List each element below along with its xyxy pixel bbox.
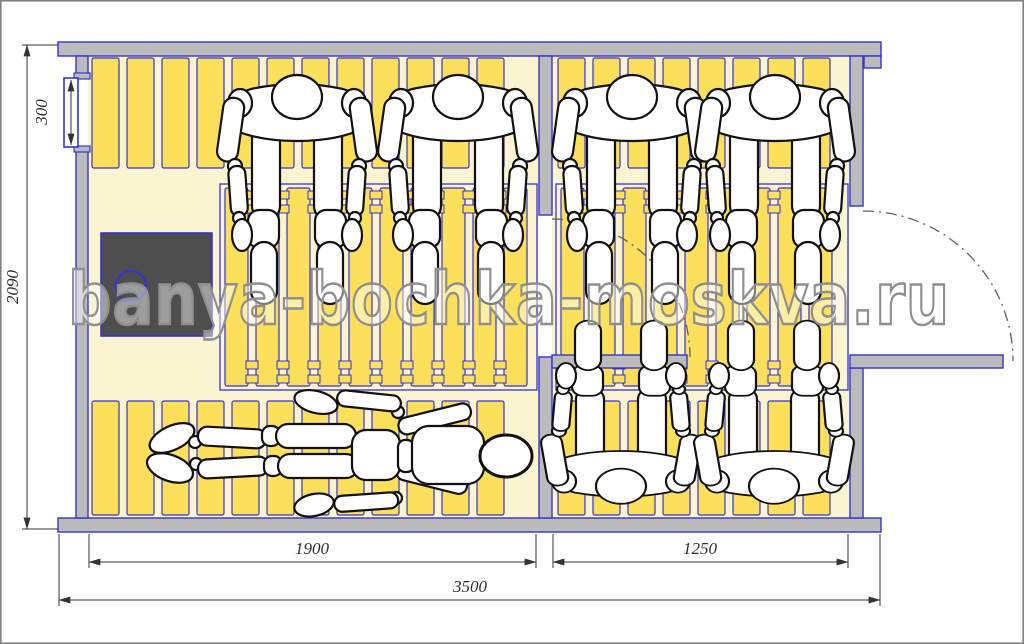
dimension-label: 300 xyxy=(32,99,51,126)
bench-rung xyxy=(432,375,444,383)
bench-rung xyxy=(768,375,780,383)
bench-rung xyxy=(246,375,258,383)
bench-slat xyxy=(92,401,119,515)
bench-slat xyxy=(162,58,189,168)
bench-rung xyxy=(370,191,382,199)
wall-top xyxy=(58,42,881,56)
dimension-label: 1900 xyxy=(295,539,330,558)
dimension-label: 2090 xyxy=(3,270,22,305)
dimension-overall-3500: 3500 xyxy=(59,534,880,606)
bench-rung xyxy=(246,361,258,369)
dimension-steam-room-1900: 1900 xyxy=(89,534,536,568)
bench-rung xyxy=(277,375,289,383)
sauna-floor-plan: banya-bochka-moskva.ru 300 2090 1900 125… xyxy=(0,0,1024,644)
bench-rung xyxy=(768,205,780,213)
bench-rung xyxy=(768,361,780,369)
dimension-label: 3500 xyxy=(452,577,488,596)
bench-rung xyxy=(463,205,475,213)
bench-rung xyxy=(308,375,320,383)
bench-rung xyxy=(339,361,351,369)
bench-rung xyxy=(308,361,320,369)
bench-rung xyxy=(339,375,351,383)
wall-left-above-window xyxy=(76,56,88,75)
wall-bottom xyxy=(58,518,881,532)
bench-slat xyxy=(92,58,119,168)
partition-wall-upper xyxy=(539,56,552,215)
bench-rung xyxy=(277,361,289,369)
bench-rung xyxy=(401,375,413,383)
bench-rung xyxy=(463,375,475,383)
bench-rung xyxy=(370,375,382,383)
wall-top-right-stub xyxy=(864,56,881,68)
bench-rung xyxy=(494,361,506,369)
dimension-label: 1250 xyxy=(683,539,718,558)
bench-rung xyxy=(768,191,780,199)
bench-slat xyxy=(127,58,154,168)
watermark-text: banya-bochka-moskva.ru xyxy=(68,257,950,341)
bench-rung xyxy=(370,205,382,213)
bench-rung xyxy=(370,361,382,369)
exterior-door-leaf xyxy=(850,355,1003,368)
bench-rung xyxy=(432,361,444,369)
bench-rung xyxy=(613,375,625,383)
dimension-entrance-room-1250: 1250 xyxy=(553,534,848,568)
bench-rung xyxy=(494,375,506,383)
bench-rung xyxy=(401,361,413,369)
bench-rung xyxy=(463,191,475,199)
bench-rung xyxy=(463,361,475,369)
